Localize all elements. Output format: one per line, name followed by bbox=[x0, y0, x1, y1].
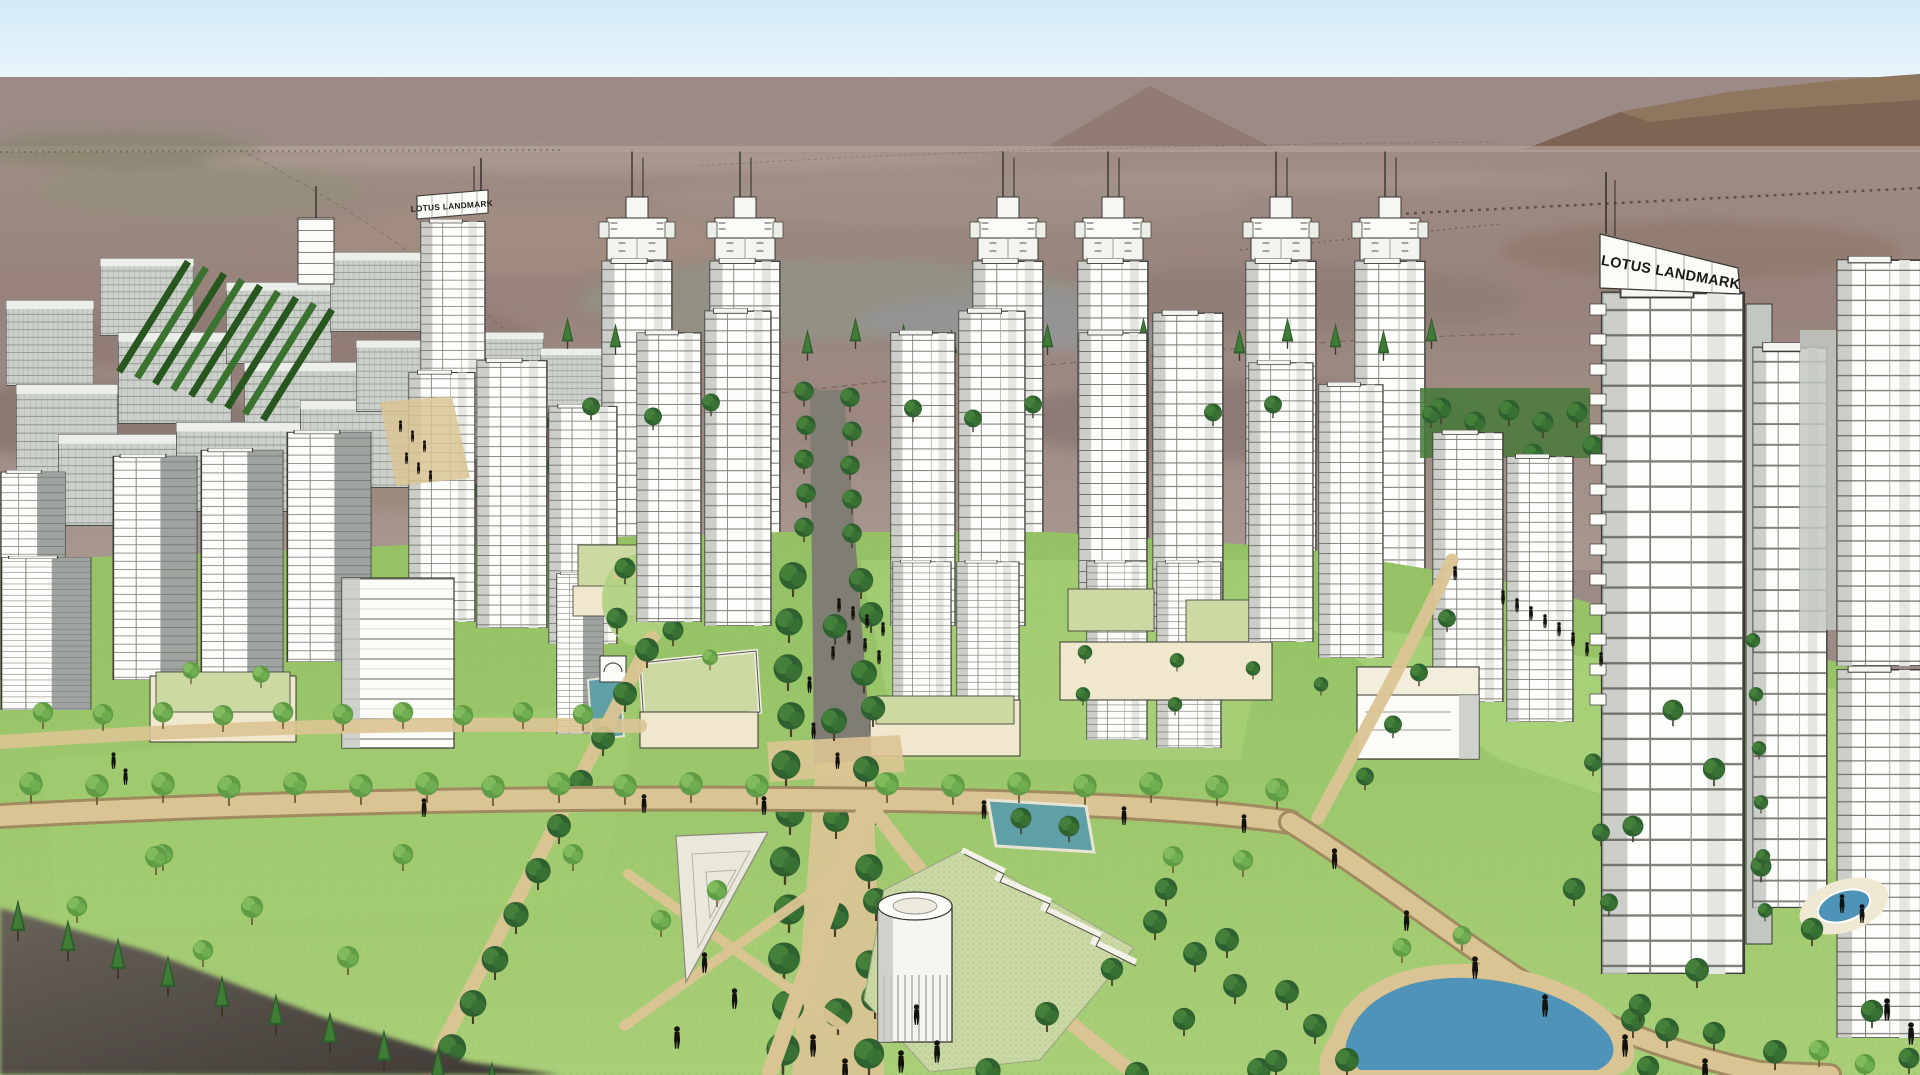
sky bbox=[0, 0, 1920, 78]
reflecting-pool bbox=[988, 800, 1094, 852]
podium-court-c bbox=[640, 650, 760, 749]
lotus-landmark-tower-right: LOTUS LANDMARK bbox=[1590, 172, 1772, 974]
rendering-svg: LOTUS LANDMARK bbox=[0, 0, 1920, 1075]
masterplan-rendering: LOTUS LANDMARK bbox=[0, 0, 1920, 1075]
